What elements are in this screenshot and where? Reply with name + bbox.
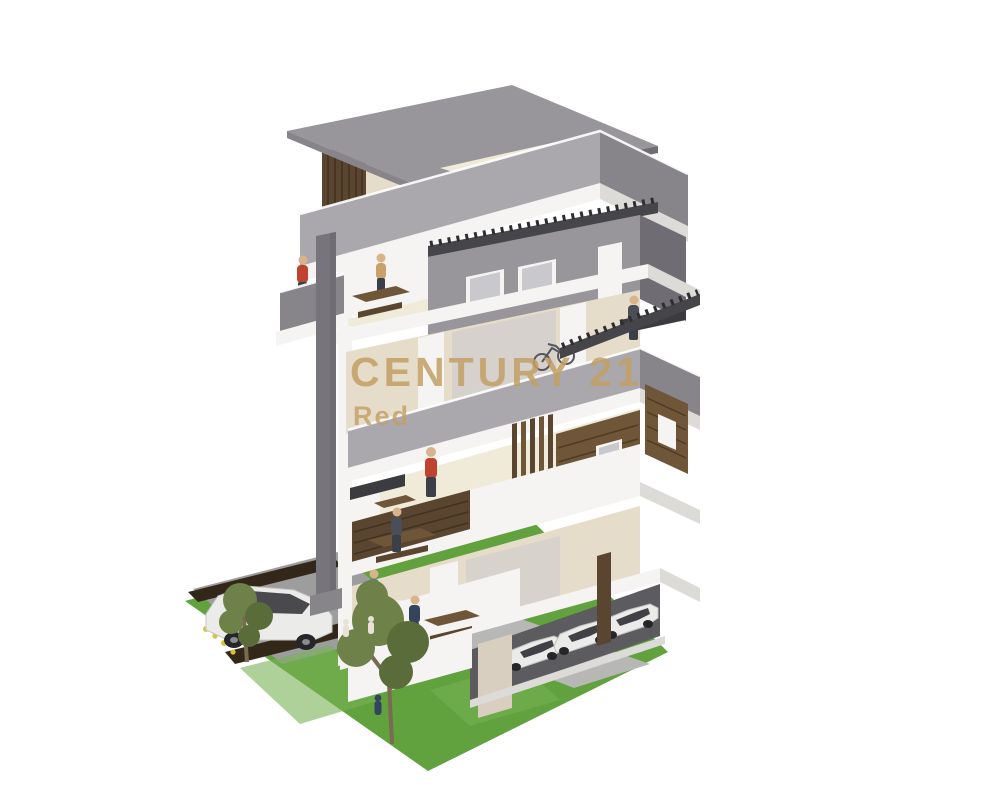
person-head (393, 508, 402, 517)
person-head (411, 596, 420, 605)
person-torso (409, 605, 420, 623)
person-head (370, 570, 379, 579)
tree-foliage (337, 629, 375, 667)
child-body (375, 701, 382, 715)
person-torso (376, 263, 386, 279)
person-head (299, 256, 308, 265)
child-figure (375, 695, 382, 715)
child-head (375, 695, 382, 702)
floor2-slab-right (640, 482, 700, 524)
brown-column (597, 552, 611, 646)
floor1-slab-right (660, 568, 700, 602)
flower (230, 649, 235, 654)
building (276, 85, 700, 718)
person-figure (376, 254, 386, 293)
child-figure (368, 616, 374, 634)
suv-wheel-hub (302, 639, 310, 645)
person-head (630, 296, 639, 305)
tree-foliage (356, 580, 388, 612)
person-head (377, 254, 386, 263)
column-shade (330, 232, 336, 603)
child-body (368, 622, 374, 634)
child-head (368, 616, 374, 622)
tree-foliage (219, 610, 243, 634)
person-legs (426, 477, 436, 497)
tree-foliage (238, 625, 260, 647)
child-body (343, 625, 349, 637)
person-figure (425, 447, 437, 497)
person-torso (297, 265, 308, 283)
garage-pillar (478, 634, 512, 718)
car-wheel (559, 647, 569, 655)
building-rendering (0, 0, 1000, 801)
person-head (426, 447, 436, 457)
person-torso (391, 517, 402, 536)
car-wheel (547, 652, 557, 660)
person-torso (425, 458, 437, 478)
render-canvas: CENTURY 21 Red (0, 0, 1000, 801)
tree-foliage (379, 655, 413, 689)
person-legs (392, 535, 401, 552)
child-figure (343, 619, 349, 637)
car-wheel (643, 620, 653, 628)
car-wheel (511, 663, 521, 671)
suv-wheel-hub (230, 637, 238, 643)
child-head (343, 619, 349, 625)
